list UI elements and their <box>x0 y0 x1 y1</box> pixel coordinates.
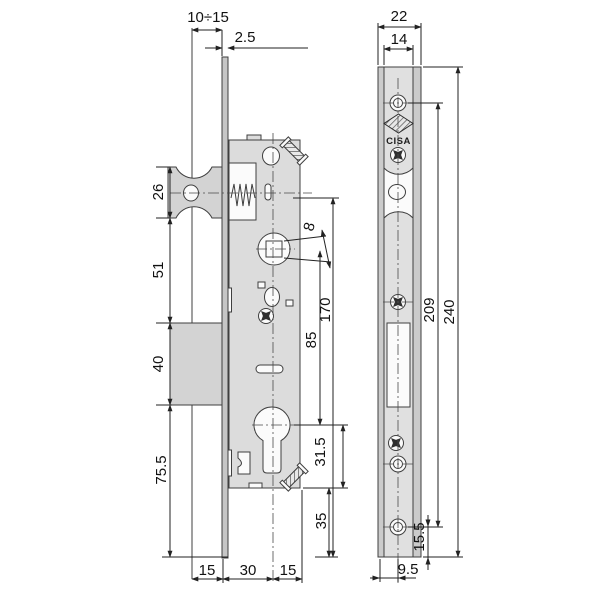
faceplate-view: CISA <box>378 67 421 585</box>
dim-case-bottom-to-end: 35 <box>313 513 330 530</box>
dim-hole-to-end: 15.5 <box>411 522 428 551</box>
deadbolt <box>170 323 222 405</box>
dim-cylinder-to-case-bottom: 31.5 <box>312 437 329 466</box>
dim-centre-distance: 85 <box>303 332 320 349</box>
small-slot <box>265 184 271 200</box>
bottom-notch <box>249 483 262 488</box>
dim-faceplate-width: 22 <box>391 8 408 25</box>
brand-name: CISA <box>386 136 411 147</box>
faceplate-edge <box>222 57 228 558</box>
dim-faceplate-length: 240 <box>441 299 458 324</box>
square-hole-right <box>286 300 293 306</box>
lock-technical-drawing: 10÷15 2.5 26 51 40 75.5 8 85 170 31.5 <box>0 0 600 600</box>
mid-oval-hole <box>265 288 280 307</box>
top-tab <box>247 135 261 140</box>
deadbolt-window <box>387 323 410 407</box>
strip-slot-lower <box>228 450 232 476</box>
dim-axis-offset: 9.5 <box>398 561 419 578</box>
horizontal-slot <box>256 365 283 373</box>
drawing-canvas: 10÷15 2.5 26 51 40 75.5 8 85 170 31.5 <box>0 0 600 600</box>
dim-deadbolt-height: 40 <box>150 356 167 373</box>
top-oval-hole <box>263 147 280 165</box>
dim-latch-height: 26 <box>150 184 167 201</box>
strip-slot-upper <box>228 288 232 312</box>
dim-deadbolt-to-end: 75.5 <box>153 455 170 484</box>
dim-case-rear: 15 <box>280 562 297 579</box>
dim-screw-distance: 209 <box>421 297 438 322</box>
dim-channel-width: 14 <box>391 31 408 48</box>
latch-tail-box <box>229 163 256 220</box>
latch-window-oval <box>389 185 406 200</box>
dim-backset: 30 <box>240 562 257 579</box>
dim-case-height: 170 <box>317 297 334 322</box>
dim-gap-range: 10÷15 <box>187 9 229 26</box>
square-hole-left <box>258 282 265 288</box>
dim-follower-square: 8 <box>300 221 319 233</box>
dim-flange-left: 15 <box>199 562 216 579</box>
dim-latch-to-deadbolt: 51 <box>150 262 167 279</box>
dim-plate-thickness: 2.5 <box>235 29 256 46</box>
